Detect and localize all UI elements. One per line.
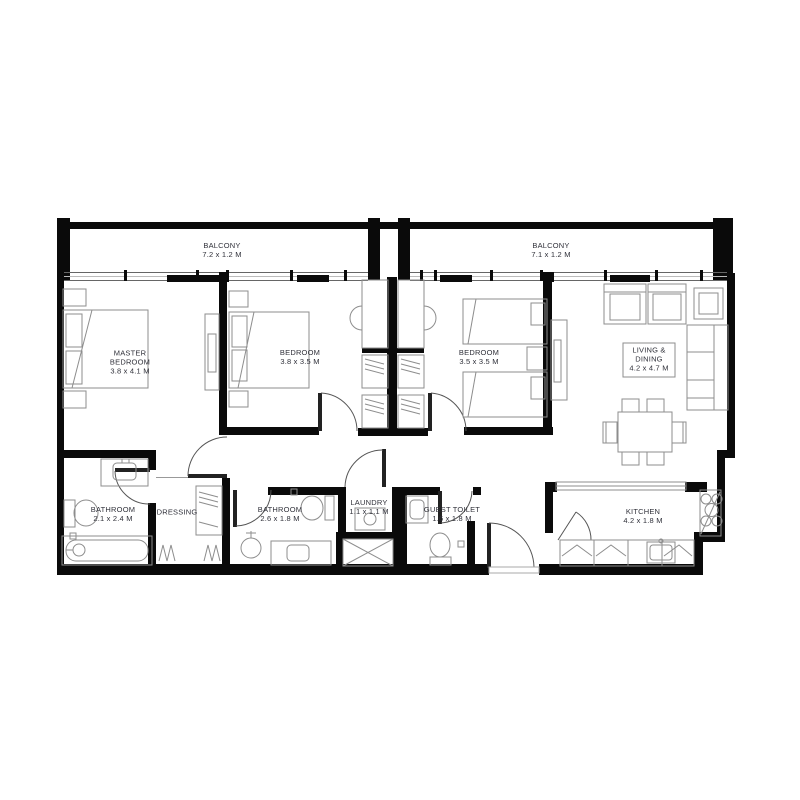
armchair — [648, 284, 686, 324]
guest-toilet-door-leaf — [438, 491, 442, 524]
clothes-rail — [159, 545, 220, 561]
dressing-wardrobe — [196, 486, 222, 535]
bathroom2-door-leaf — [233, 490, 237, 527]
column-slot — [380, 229, 398, 277]
floor-plan-page: BALCONY 7.2 x 1.2 M BALCONY 7.1 x 1.2 M … — [0, 0, 800, 800]
bathroom1-door-leaf — [115, 468, 150, 472]
tv-console — [551, 320, 567, 400]
master-door-leaf — [188, 474, 227, 478]
entry-door-leaf — [487, 523, 491, 568]
nightstand — [63, 289, 86, 306]
dining-set — [603, 399, 686, 465]
desk-chair — [424, 306, 436, 330]
nightstand — [229, 291, 248, 307]
doors — [115, 393, 591, 573]
bedroom2-door-leaf — [318, 393, 322, 431]
breakfast-counter — [556, 482, 686, 490]
armchair — [604, 284, 646, 324]
floor-plan-drawing — [0, 0, 800, 800]
bedroom2-bed — [229, 312, 309, 388]
dining-table — [618, 412, 672, 452]
dining-chair — [622, 452, 639, 465]
door-leaves — [115, 393, 491, 568]
dining-chair — [647, 399, 664, 412]
sofa — [687, 325, 728, 410]
kitchen-counter — [560, 540, 694, 566]
master-bed — [63, 310, 148, 388]
bedroom3-twin-beds — [463, 299, 547, 417]
bathtub — [62, 536, 152, 565]
door-swings — [115, 393, 591, 567]
nightstand — [229, 391, 248, 407]
laundry-door-leaf — [382, 449, 386, 487]
bedroom3-door-leaf — [428, 393, 432, 431]
entry-threshold — [489, 567, 539, 573]
toilet — [430, 533, 464, 565]
wardrobe-left — [350, 280, 388, 428]
nightstand — [63, 391, 86, 408]
dining-chair — [622, 399, 639, 412]
guest-basin — [406, 496, 428, 523]
washing-machine — [355, 508, 385, 530]
bathroom1-vanity — [101, 459, 148, 486]
dining-chair — [647, 452, 664, 465]
side-table — [694, 288, 723, 319]
shower — [241, 531, 261, 558]
bathroom2-vanity — [271, 541, 331, 565]
coffee-table — [623, 343, 675, 377]
dining-chair — [672, 422, 686, 443]
shaft — [343, 539, 393, 566]
master-dresser — [205, 314, 219, 390]
dining-chair — [603, 422, 617, 443]
kitchen-door-leaf — [558, 512, 576, 540]
toilet — [64, 500, 98, 539]
desk-chair — [350, 306, 362, 330]
